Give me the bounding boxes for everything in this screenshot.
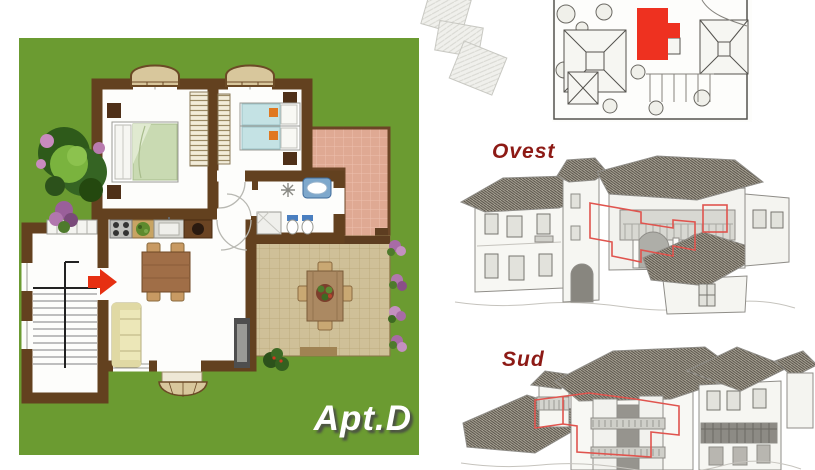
floorplan-panel	[19, 38, 419, 455]
floorplan-drawing	[19, 38, 419, 455]
villa-right-section	[745, 194, 789, 266]
villa-right-block	[687, 347, 789, 470]
single-bed-2	[240, 126, 300, 150]
wardrobe-2	[218, 94, 230, 164]
bidet	[302, 215, 313, 234]
kitchen-counter	[110, 217, 212, 238]
wardrobe	[190, 92, 208, 166]
faint-footprint-sketch	[415, 0, 515, 100]
apartment-label: Apt.D	[300, 399, 412, 439]
single-bed-1	[240, 103, 300, 126]
view-west-sketch	[445, 150, 805, 320]
sofa	[112, 303, 141, 367]
brochure-sheet: Apt.D	[0, 0, 815, 470]
villa-tower	[557, 158, 607, 302]
view-south-sketch	[455, 325, 815, 470]
toilet	[287, 215, 298, 234]
site-plan	[552, 0, 752, 122]
fireplace	[234, 318, 250, 368]
double-bed	[112, 122, 178, 182]
shower-symbol	[281, 183, 295, 197]
dining-table	[142, 243, 190, 301]
